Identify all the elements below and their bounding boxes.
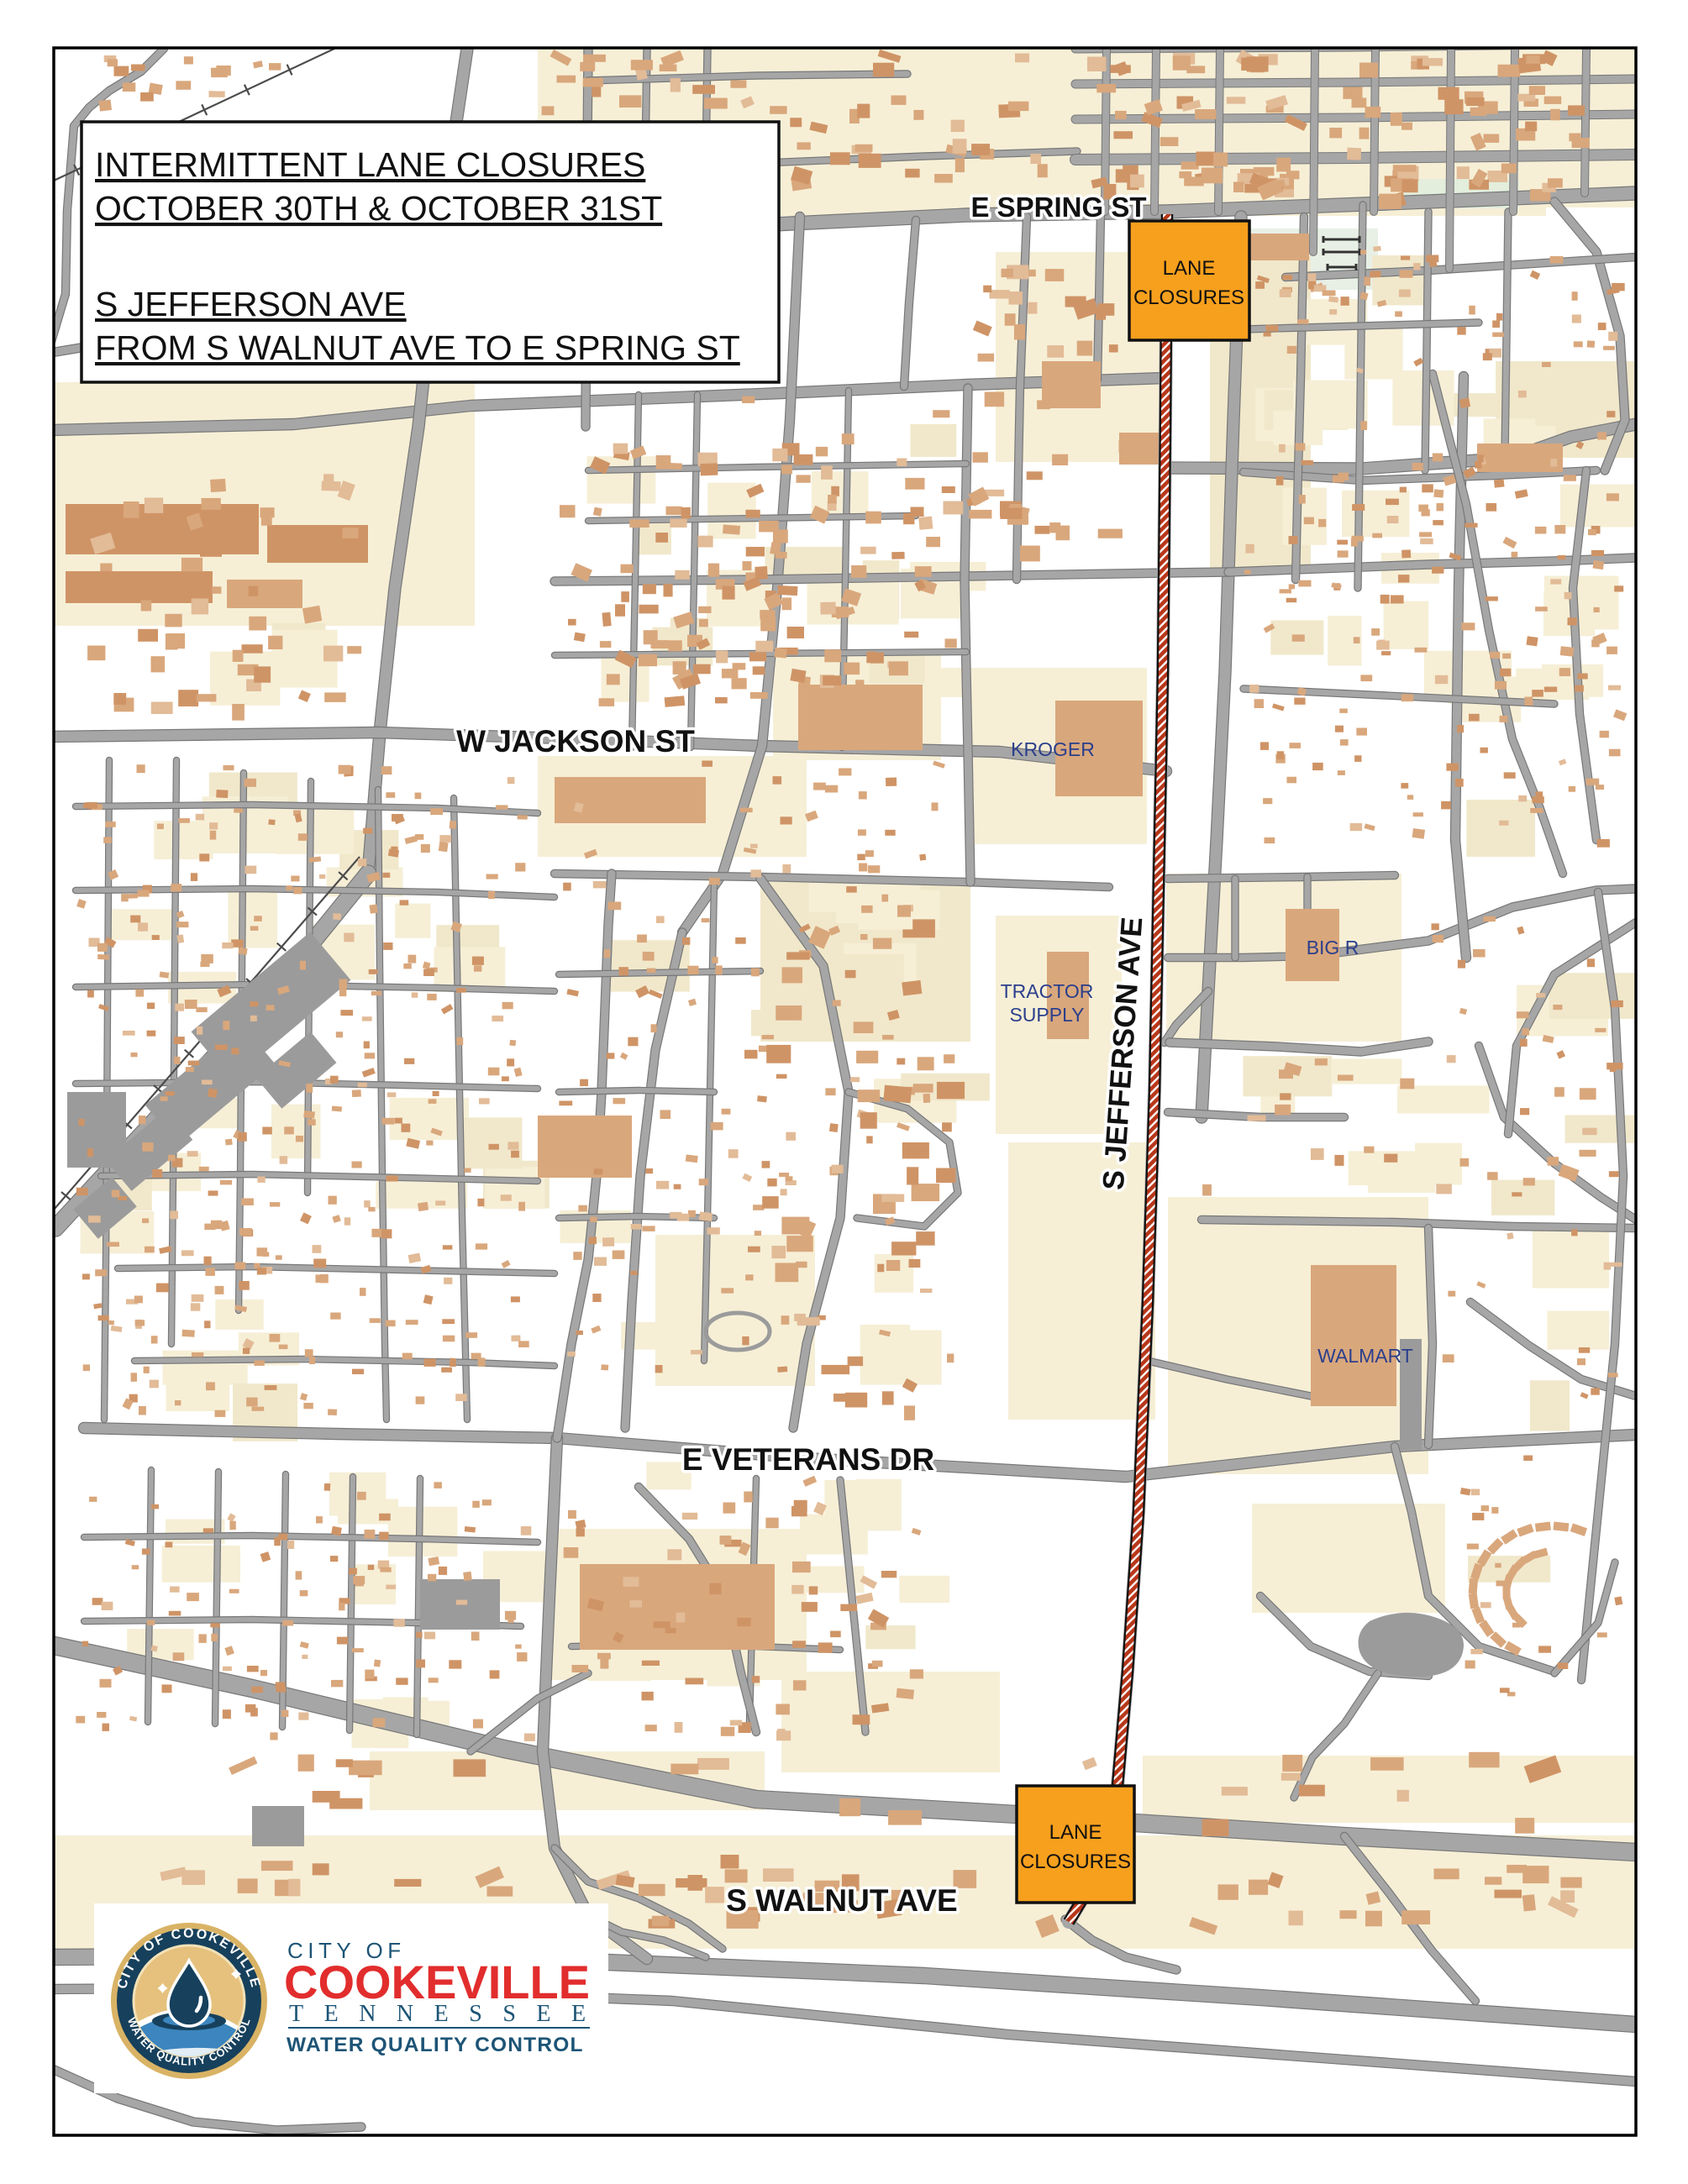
svg-text:CLOSURES: CLOSURES — [1133, 286, 1244, 309]
svg-text:S JEFFERSON AVE: S JEFFERSON AVE — [95, 285, 407, 323]
svg-text:S WALNUT AVE: S WALNUT AVE — [726, 1883, 957, 1918]
svg-text:LANE: LANE — [1163, 257, 1216, 280]
svg-text:WATER QUALITY CONTROL: WATER QUALITY CONTROL — [287, 2034, 584, 2056]
svg-text:TENNESSEE: TENNESSEE — [289, 2001, 607, 2027]
svg-text:TRACTOR: TRACTOR — [1001, 980, 1094, 1002]
svg-text:FROM S WALNUT AVE TO E SPRING: FROM S WALNUT AVE TO E SPRING ST — [95, 328, 740, 367]
svg-text:KROGER: KROGER — [1011, 738, 1095, 760]
svg-text:SUPPLY: SUPPLY — [1009, 1004, 1084, 1026]
svg-text:LANE: LANE — [1049, 1821, 1102, 1844]
svg-text:CLOSURES: CLOSURES — [1020, 1851, 1131, 1873]
svg-text:W JACKSON ST: W JACKSON ST — [456, 724, 695, 759]
svg-text:OCTOBER 30TH & OCTOBER 31ST: OCTOBER 30TH & OCTOBER 31ST — [95, 189, 662, 228]
svg-text:INTERMITTENT LANE CLOSURES: INTERMITTENT LANE CLOSURES — [95, 145, 645, 184]
svg-text:WALMART: WALMART — [1317, 1345, 1413, 1367]
svg-text:E SPRING ST: E SPRING ST — [970, 192, 1146, 223]
svg-text:E VETERANS DR: E VETERANS DR — [682, 1442, 934, 1477]
svg-text:BIG R: BIG R — [1307, 937, 1359, 958]
